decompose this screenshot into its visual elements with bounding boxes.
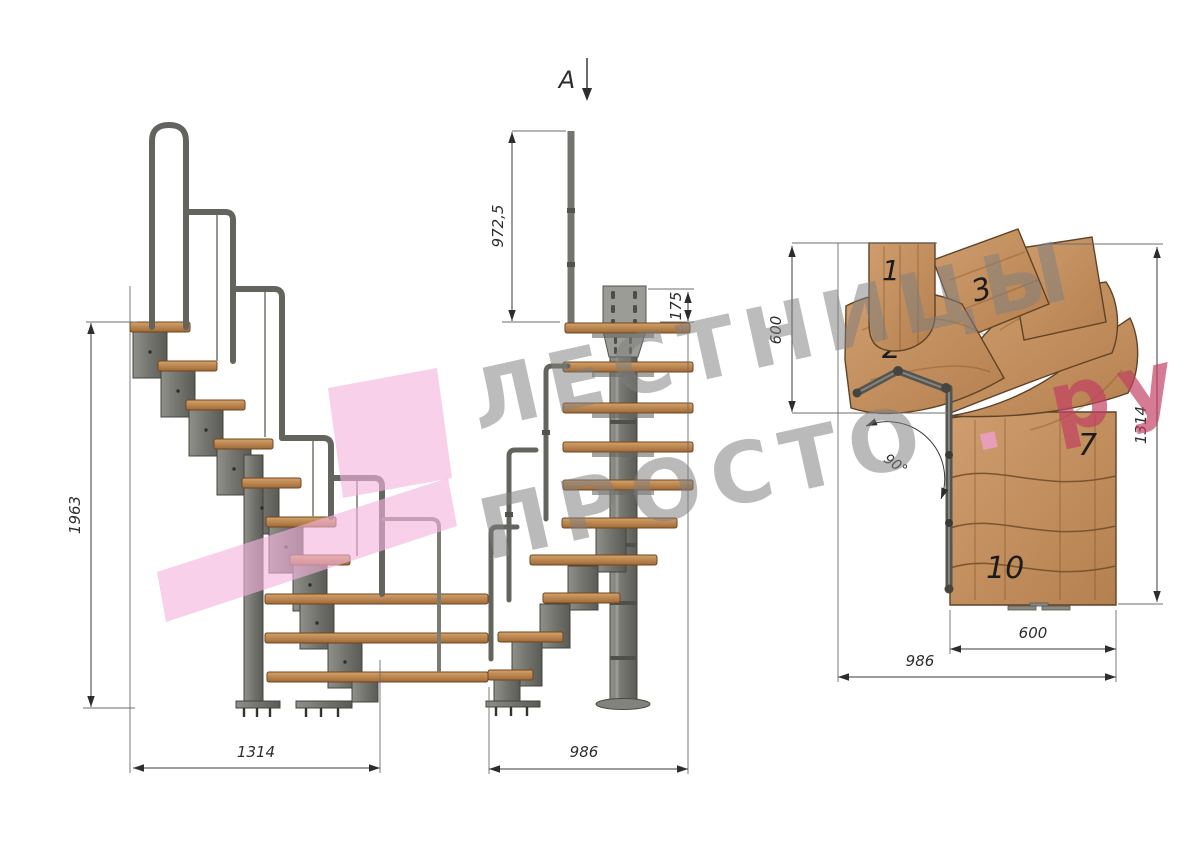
section-label: A (557, 66, 575, 94)
dim-side-width: 1314 (237, 743, 275, 761)
section-arrow-icon (582, 88, 592, 101)
dim-plan-tread: 600 (1019, 624, 1048, 642)
section-mark: A (557, 58, 592, 101)
dim-front-width: 986 (570, 743, 599, 761)
post-joint (567, 208, 575, 213)
post-joint (567, 262, 575, 267)
step-number-10: 10 (986, 551, 1024, 586)
staircase-drawing: 1963 1314 A (0, 0, 1200, 849)
side-base-plate (236, 701, 280, 708)
dim-post-height: 972,5 (489, 205, 507, 248)
dim-side-height: 1963 (66, 496, 84, 534)
column-base (596, 699, 650, 710)
watermark-dot: . (958, 366, 1021, 471)
watermark-ribbon-square (328, 368, 452, 498)
front-anchor-bolts (496, 707, 527, 716)
technical-drawing-canvas: 1963 1314 A (0, 0, 1200, 849)
dim-plan-width: 986 (906, 652, 935, 670)
side-anchor-bolts (244, 708, 338, 717)
side-base-plate-2 (296, 701, 352, 708)
baluster-joint (945, 519, 953, 527)
handrail-loop (152, 125, 186, 327)
